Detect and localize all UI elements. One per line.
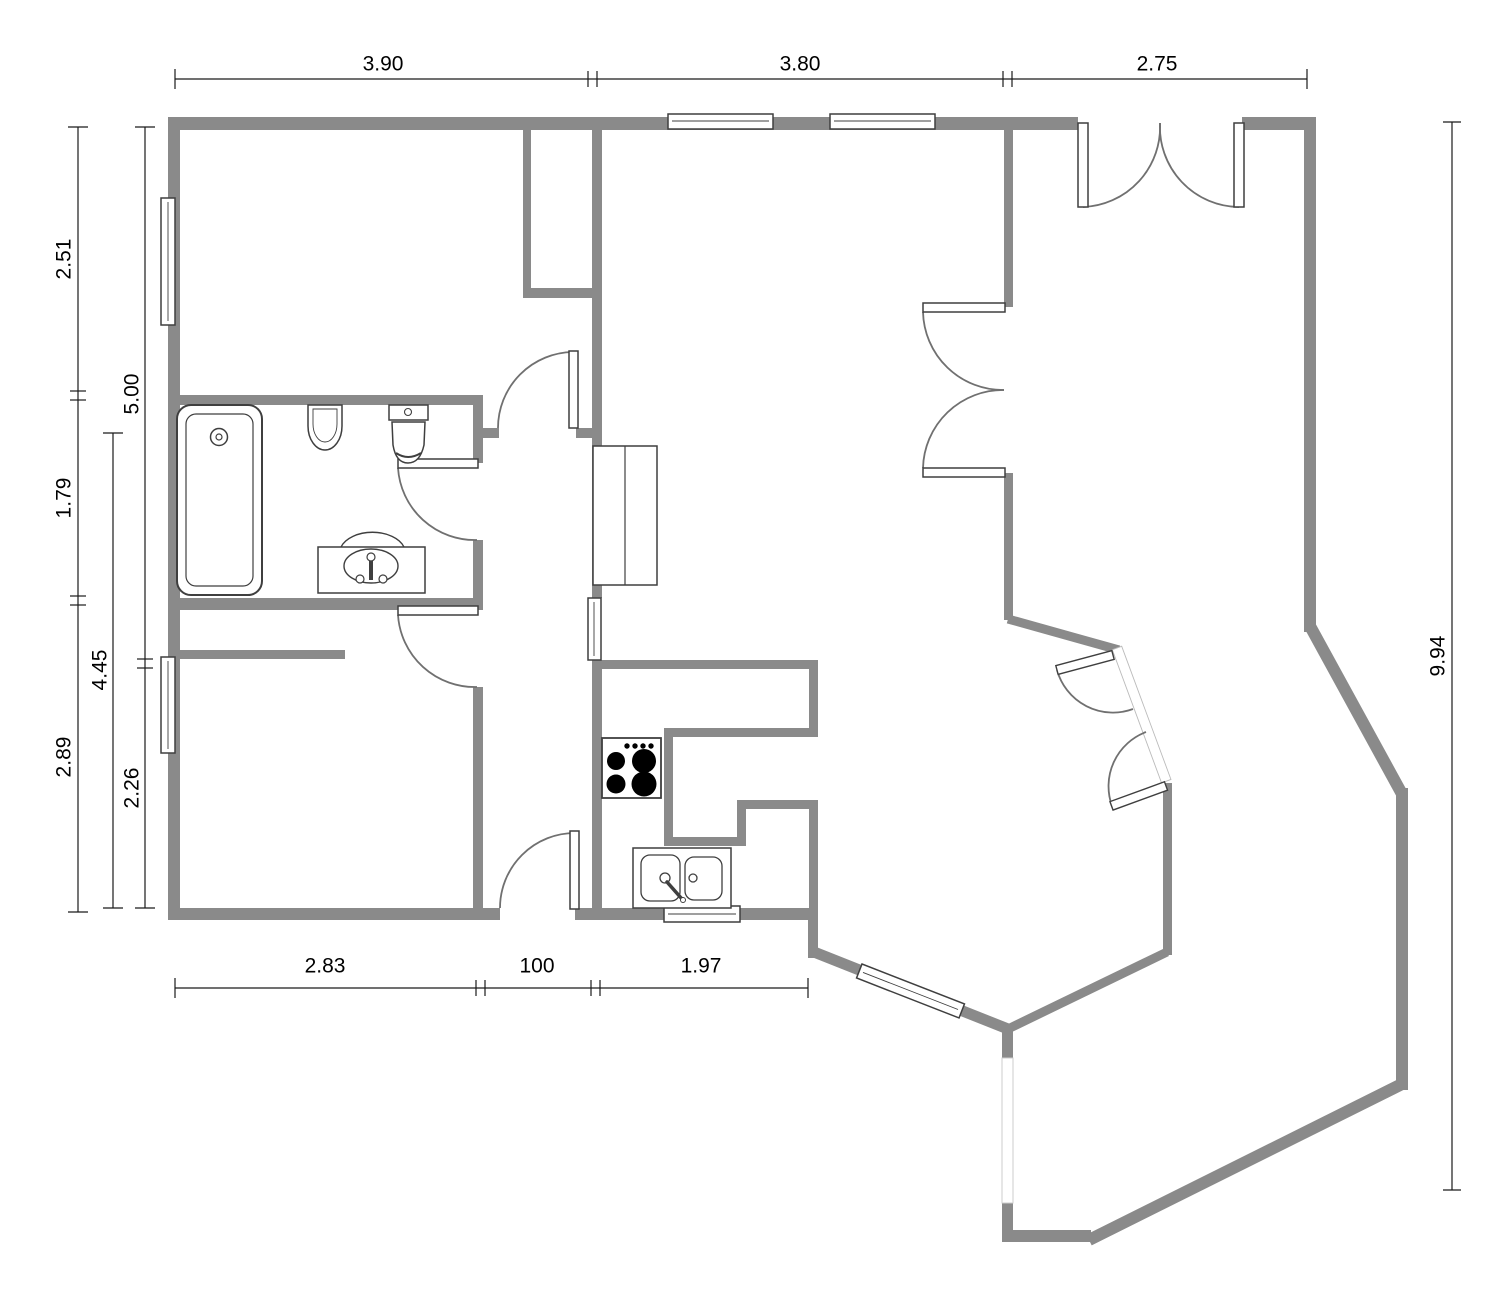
wall-closet-bottom bbox=[523, 288, 600, 298]
wall-kitchen-d bbox=[664, 837, 746, 846]
wall-bedroom2-closet bbox=[168, 650, 345, 659]
bedroom2-door bbox=[398, 606, 483, 687]
wall-right-lower bbox=[1396, 788, 1408, 1090]
windows bbox=[161, 114, 964, 1018]
wall-bedroom2-east bbox=[473, 687, 483, 908]
walls bbox=[168, 117, 1408, 1242]
wall-diag-corridor-lower bbox=[1010, 952, 1167, 1028]
stove-cooktop bbox=[602, 738, 661, 798]
dimension-lines bbox=[68, 69, 1461, 1190]
wall-corridor-west-lower bbox=[1004, 473, 1013, 620]
entrance-door bbox=[500, 831, 579, 920]
dim-label-left-outer-2: 1.79 bbox=[54, 478, 75, 519]
wall-kitchen-f bbox=[737, 800, 818, 809]
window-top-2 bbox=[830, 114, 935, 129]
dim-label-top-2: 3.80 bbox=[780, 54, 821, 75]
bidet bbox=[308, 405, 342, 450]
wall-diag-corridor-upper bbox=[1008, 619, 1119, 650]
wall-bay-left-lower bbox=[1002, 1203, 1013, 1242]
vanity-sink bbox=[318, 532, 425, 593]
wall-closet-left bbox=[523, 117, 531, 292]
dim-label-bottom-2: 100 bbox=[519, 956, 554, 977]
wall-bathroom-east-upper bbox=[473, 405, 483, 463]
living-double-door bbox=[923, 303, 1013, 477]
diagonal-double-door bbox=[1056, 646, 1171, 810]
dim-label-left-inner-1: 5.00 bbox=[122, 374, 143, 415]
floor-plan-drawing bbox=[0, 0, 1511, 1296]
dim-label-left-outer-3: 2.89 bbox=[54, 737, 75, 778]
dim-label-right: 9.94 bbox=[1428, 636, 1449, 677]
wall-corridor-west-upper bbox=[1004, 117, 1013, 307]
dim-label-left-outer-1: 2.51 bbox=[54, 239, 75, 280]
dim-label-bottom-3: 1.97 bbox=[681, 956, 722, 977]
dim-line-bottom bbox=[175, 978, 808, 998]
bathroom-door bbox=[398, 459, 483, 540]
kitchen-sink bbox=[633, 848, 731, 908]
dim-label-left-inner-2: 2.26 bbox=[122, 768, 143, 809]
window-left-lower bbox=[161, 657, 175, 753]
dim-label-top-3: 2.75 bbox=[1137, 54, 1178, 75]
wall-kitchen-a bbox=[809, 660, 818, 737]
wall-bathroom-top bbox=[168, 395, 483, 405]
toilet bbox=[389, 405, 428, 463]
window-kitchen-west bbox=[588, 598, 601, 660]
dim-label-bottom-1: 2.83 bbox=[305, 956, 346, 977]
bathtub bbox=[177, 405, 262, 595]
entry-double-door bbox=[1078, 117, 1244, 207]
wall-terrace-bottom bbox=[1005, 1230, 1091, 1242]
wall-kitchen-c bbox=[664, 728, 673, 846]
floor-plan-canvas: 3.90 3.80 2.75 2.83 100 1.97 2.51 1.79 2… bbox=[0, 0, 1511, 1296]
wall-diag-right-top bbox=[1310, 626, 1402, 794]
dim-label-left-middle: 4.45 bbox=[90, 650, 111, 691]
wall-bathroom-east-lower bbox=[473, 540, 483, 598]
bedroom1-door bbox=[498, 351, 578, 438]
terrace-opening bbox=[1002, 1058, 1013, 1203]
wall-right-top bbox=[1304, 117, 1316, 632]
wall-hall-top-right bbox=[576, 428, 602, 438]
wall-kitchen-west bbox=[592, 660, 602, 908]
window-bay-diagonal bbox=[857, 964, 965, 1018]
wall-corridor-east bbox=[1163, 783, 1172, 955]
wall-hall-top-left bbox=[483, 428, 499, 438]
window-top-1 bbox=[668, 114, 773, 129]
wall-kitchen-b bbox=[664, 728, 818, 737]
window-left-upper bbox=[161, 198, 175, 325]
wall-kitchen-top bbox=[592, 660, 818, 669]
wardrobe-cabinet bbox=[593, 446, 657, 585]
dim-label-top-1: 3.90 bbox=[363, 54, 404, 75]
wall-kitchen-g bbox=[809, 800, 818, 908]
wall-diag-bottom bbox=[1089, 1084, 1402, 1240]
